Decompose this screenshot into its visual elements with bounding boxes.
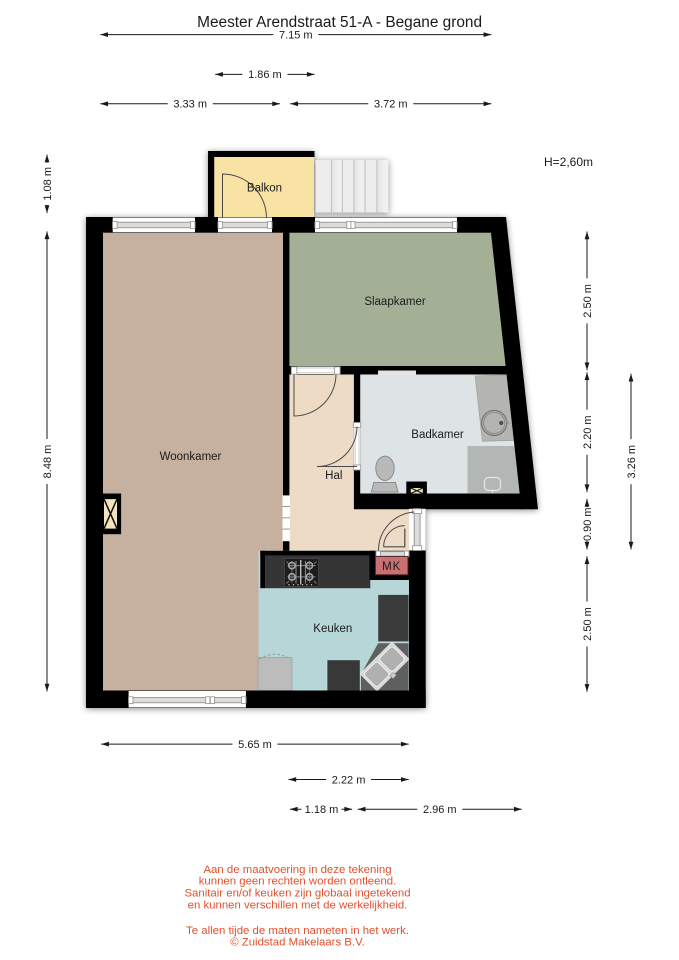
svg-text:Hal: Hal <box>325 470 342 482</box>
svg-text:Aan de maatvoering in deze tek: Aan de maatvoering in deze tekening <box>203 864 391 876</box>
svg-text:MK: MK <box>382 561 401 573</box>
svg-text:Keuken: Keuken <box>313 623 352 635</box>
svg-text:1.08 m: 1.08 m <box>42 167 54 201</box>
svg-text:H=2,60m: H=2,60m <box>544 155 593 169</box>
svg-text:2.20 m: 2.20 m <box>582 415 594 449</box>
svg-text:Meester Arendstraat 51-A - Beg: Meester Arendstraat 51-A - Begane grond <box>197 14 482 31</box>
svg-text:Balkon: Balkon <box>247 183 282 195</box>
svg-text:© Zuidstad Makelaars B.V.: © Zuidstad Makelaars B.V. <box>230 937 365 949</box>
svg-text:Badkamer: Badkamer <box>411 429 464 441</box>
svg-text:0.90 m: 0.90 m <box>582 507 594 541</box>
svg-text:1.18 m: 1.18 m <box>305 804 339 816</box>
svg-text:2.96 m: 2.96 m <box>423 804 457 816</box>
svg-text:2.50 m: 2.50 m <box>582 284 594 318</box>
svg-text:Slaapkamer: Slaapkamer <box>364 296 426 308</box>
svg-text:Woonkamer: Woonkamer <box>160 451 222 463</box>
svg-text:2.22 m: 2.22 m <box>332 774 366 786</box>
svg-text:7.15 m: 7.15 m <box>279 29 313 41</box>
svg-text:3.72 m: 3.72 m <box>374 99 408 111</box>
svg-text:1.86 m: 1.86 m <box>248 69 282 81</box>
svg-text:2.50 m: 2.50 m <box>582 607 594 641</box>
svg-text:3.33 m: 3.33 m <box>173 99 207 111</box>
svg-text:Te allen tijde de maten namete: Te allen tijde de maten nameten in het w… <box>186 925 409 937</box>
svg-text:kunnen geen rechten worden ont: kunnen geen rechten worden ontleend. <box>199 876 397 888</box>
svg-text:3.26 m: 3.26 m <box>626 445 638 479</box>
svg-text:Sanitair en/of keuken zijn glo: Sanitair en/of keuken zijn globaal inget… <box>184 888 410 900</box>
svg-text:8.48 m: 8.48 m <box>42 445 54 479</box>
svg-text:en kunnen verschillen met de w: en kunnen verschillen met de werkelijkhe… <box>188 900 408 912</box>
svg-text:5.65 m: 5.65 m <box>238 739 272 751</box>
